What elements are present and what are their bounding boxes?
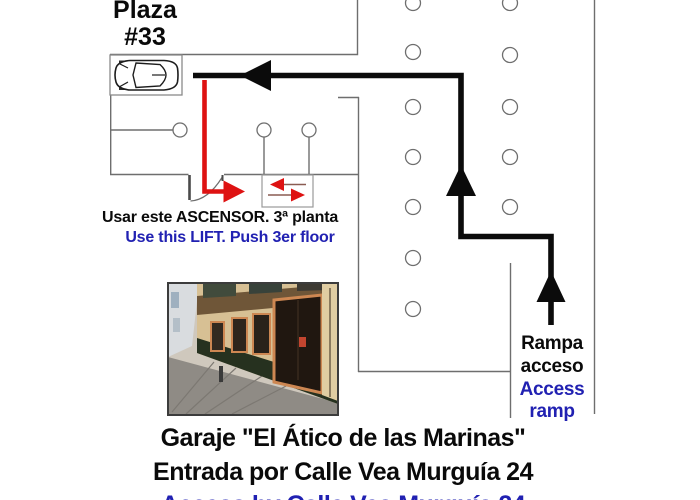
ramp-note-en-1: Access (509, 379, 595, 402)
footer-title: Garaje "El Ático de las Marinas" (55, 422, 631, 456)
up-arrow-icon (446, 165, 476, 196)
footer-address-es: Entrada por Calle Vea Murguía 24 (55, 456, 631, 490)
ramp-note: Rampa acceso Access ramp (509, 333, 595, 424)
up-arrow-icon (537, 271, 566, 302)
ramp-note-es-2: acceso (509, 356, 595, 379)
plaza-number: #33 (95, 24, 195, 51)
plaza-label: Plaza #33 (95, 0, 195, 51)
car-top-view-icon (115, 60, 178, 91)
direction-sheet: Plaza #33 Usar este ASCENSOR. 3ª planta … (0, 0, 700, 500)
footer-address-en: Access by Calle Vea Murguía 24 (55, 489, 631, 500)
pillars (173, 0, 518, 317)
elevator-doors-icon (262, 175, 313, 207)
ramp-note-en-2: ramp (509, 401, 595, 424)
plaza-word: Plaza (95, 0, 195, 24)
lift-note-es: Usar este ASCENSOR. 3ª planta (70, 209, 370, 227)
left-arrow-icon (240, 60, 271, 91)
footer-caption: Garaje "El Ático de las Marinas" Entrada… (55, 422, 631, 500)
garage-entrance-street-photo (168, 283, 338, 415)
walking-route (205, 80, 246, 203)
red-right-arrow-icon (224, 181, 246, 203)
lift-note-en: Use this LIFT. Push 3er floor (80, 229, 380, 247)
ramp-note-es-1: Rampa (509, 333, 595, 356)
